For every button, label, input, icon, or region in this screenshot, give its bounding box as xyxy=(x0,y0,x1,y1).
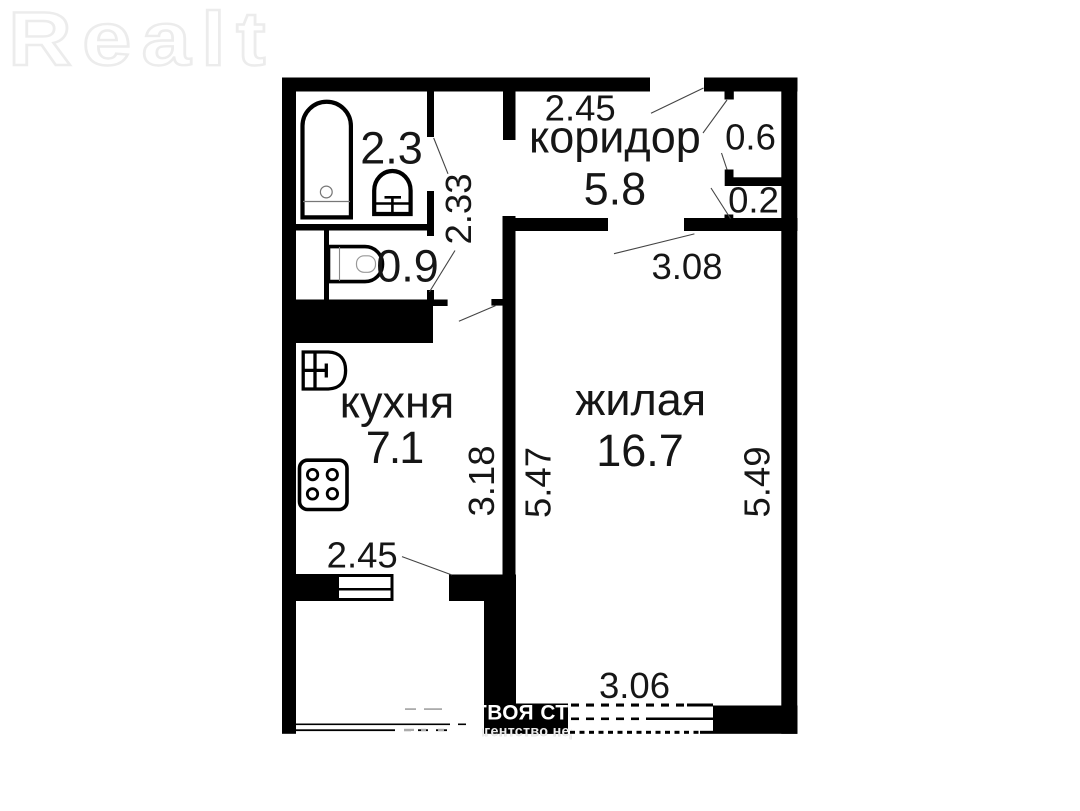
svg-text:0.9: 0.9 xyxy=(376,240,439,291)
svg-text:2.45: 2.45 xyxy=(327,535,398,576)
svg-text:5.8: 5.8 xyxy=(584,164,647,215)
svg-text:2.33: 2.33 xyxy=(438,173,479,244)
svg-text:2.3: 2.3 xyxy=(360,123,423,174)
svg-text:жилая: жилая xyxy=(575,374,706,425)
svg-text:0.2: 0.2 xyxy=(728,179,779,220)
svg-text:0.6: 0.6 xyxy=(725,117,776,158)
svg-text:5.49: 5.49 xyxy=(736,446,777,517)
svg-text:3.06: 3.06 xyxy=(599,665,670,706)
svg-text:16.7: 16.7 xyxy=(596,425,684,476)
svg-text:2.45: 2.45 xyxy=(545,87,616,128)
svg-text:7.1: 7.1 xyxy=(366,422,423,473)
svg-text:3.08: 3.08 xyxy=(651,246,722,287)
svg-text:3.18: 3.18 xyxy=(461,445,502,516)
svg-text:кухня: кухня xyxy=(340,377,454,428)
svg-text:5.47: 5.47 xyxy=(518,447,559,518)
svg-text:Realt: Realt xyxy=(8,0,276,82)
